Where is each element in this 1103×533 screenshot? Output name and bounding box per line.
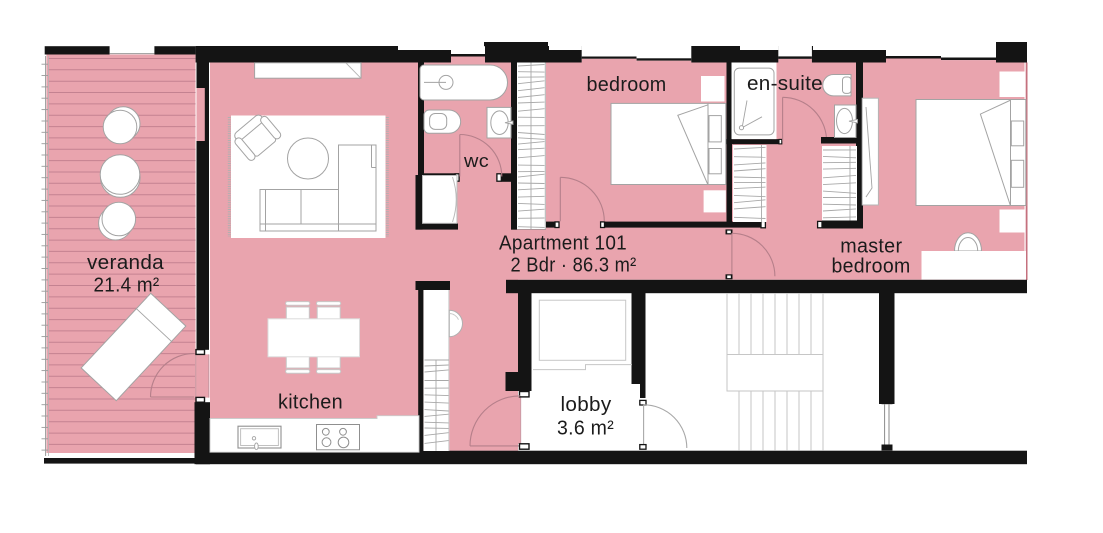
svg-text:en-suite: en-suite <box>747 72 823 95</box>
svg-text:bedroom: bedroom <box>832 255 911 278</box>
svg-text:bedroom: bedroom <box>587 73 667 96</box>
svg-text:wc: wc <box>463 151 489 171</box>
svg-text:3.6 m²: 3.6 m² <box>557 417 614 440</box>
svg-text:21.4 m²: 21.4 m² <box>94 274 160 297</box>
svg-text:2 Bdr · 86.3 m²: 2 Bdr · 86.3 m² <box>511 254 637 277</box>
svg-text:Apartment 101: Apartment 101 <box>499 232 627 255</box>
svg-text:lobby: lobby <box>561 393 612 416</box>
svg-text:kitchen: kitchen <box>278 391 343 414</box>
svg-text:veranda: veranda <box>87 251 164 274</box>
